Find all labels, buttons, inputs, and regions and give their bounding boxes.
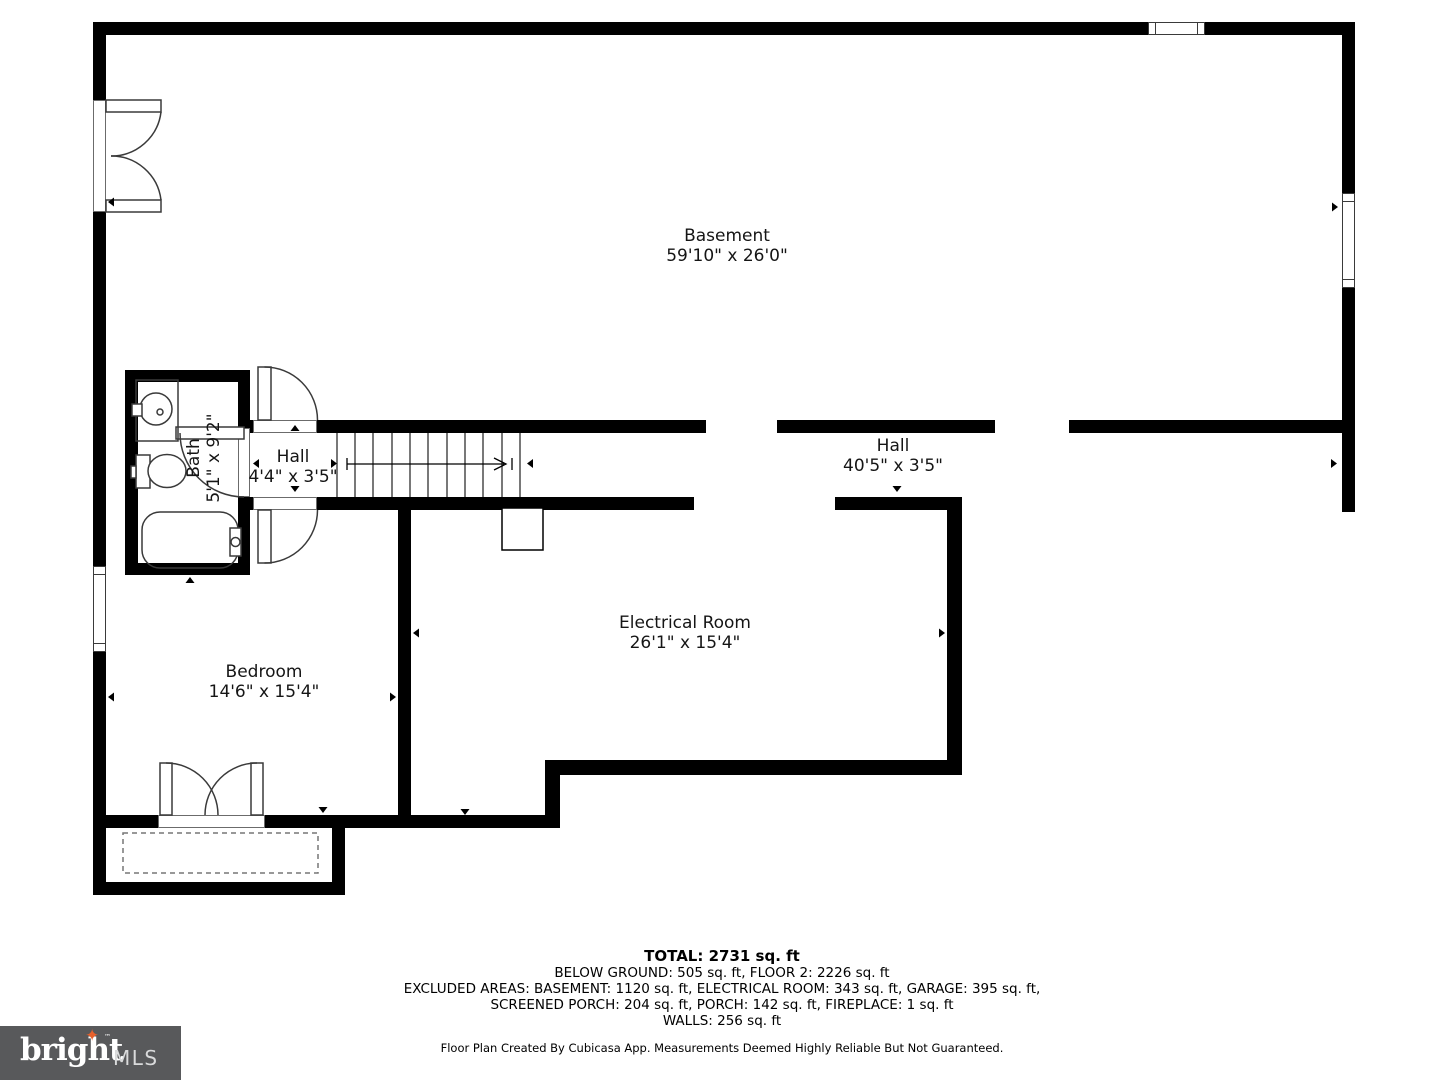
stairs [337, 433, 520, 497]
room-label-hall-main: Hall 40'5" x 3'5" [843, 436, 943, 476]
utility-unit [502, 508, 543, 550]
summary-line: EXCLUDED AREAS: BASEMENT: 1120 sq. ft, E… [102, 981, 1342, 997]
room-name: Bedroom [209, 662, 320, 682]
double-door [160, 763, 263, 815]
sink [132, 380, 178, 441]
door-swing [258, 510, 318, 563]
logo-suffix-text: MLS [113, 1046, 159, 1070]
room-label-hall-small: Hall 4'4" x 3'5" [248, 447, 337, 487]
dimension-markers [108, 198, 1338, 816]
room-dims: 26'1" x 15'4" [619, 633, 751, 653]
plan-symbols-layer [0, 0, 1440, 1080]
double-door [106, 100, 161, 212]
trademark-symbol: ™ [104, 1033, 111, 1041]
room-dims: 40'5" x 3'5" [843, 456, 943, 476]
summary-line: WALLS: 256 sq. ft [102, 1013, 1342, 1029]
bathtub [142, 512, 241, 568]
porch-dashed-outline [123, 833, 318, 873]
toilet [131, 455, 186, 489]
door-swing [258, 367, 318, 420]
bright-mls-logo: bright ✦ ™ MLS [0, 1026, 181, 1080]
room-name: Bath [184, 413, 204, 502]
floor-plan-page: Basement 59'10" x 26'0" Hall 40'5" x 3'5… [0, 0, 1440, 1080]
room-label-basement: Basement 59'10" x 26'0" [666, 226, 788, 266]
room-dims: 59'10" x 26'0" [666, 246, 788, 266]
room-name: Basement [666, 226, 788, 246]
room-dims: 5'1" x 9'2" [204, 413, 224, 502]
disclaimer-text: Floor Plan Created By Cubicasa App. Meas… [102, 1041, 1342, 1055]
room-label-bath: Bath 5'1" x 9'2" [184, 413, 224, 502]
room-dims: 14'6" x 15'4" [209, 682, 320, 702]
room-name: Electrical Room [619, 613, 751, 633]
room-label-electrical-room: Electrical Room 26'1" x 15'4" [619, 613, 751, 653]
stairs-direction-arrow [347, 458, 512, 470]
room-name: Hall [843, 436, 943, 456]
summary-line: BELOW GROUND: 505 sq. ft, FLOOR 2: 2226 … [102, 965, 1342, 981]
summary-line: SCREENED PORCH: 204 sq. ft, PORCH: 142 s… [102, 997, 1342, 1013]
room-name: Hall [248, 447, 337, 467]
star-icon: ✦ [85, 1026, 99, 1046]
room-dims: 4'4" x 3'5" [248, 467, 337, 487]
room-label-bedroom: Bedroom 14'6" x 15'4" [209, 662, 320, 702]
area-summary: TOTAL: 2731 sq. ft BELOW GROUND: 505 sq.… [102, 948, 1342, 1055]
total-area: TOTAL: 2731 sq. ft [102, 948, 1342, 965]
